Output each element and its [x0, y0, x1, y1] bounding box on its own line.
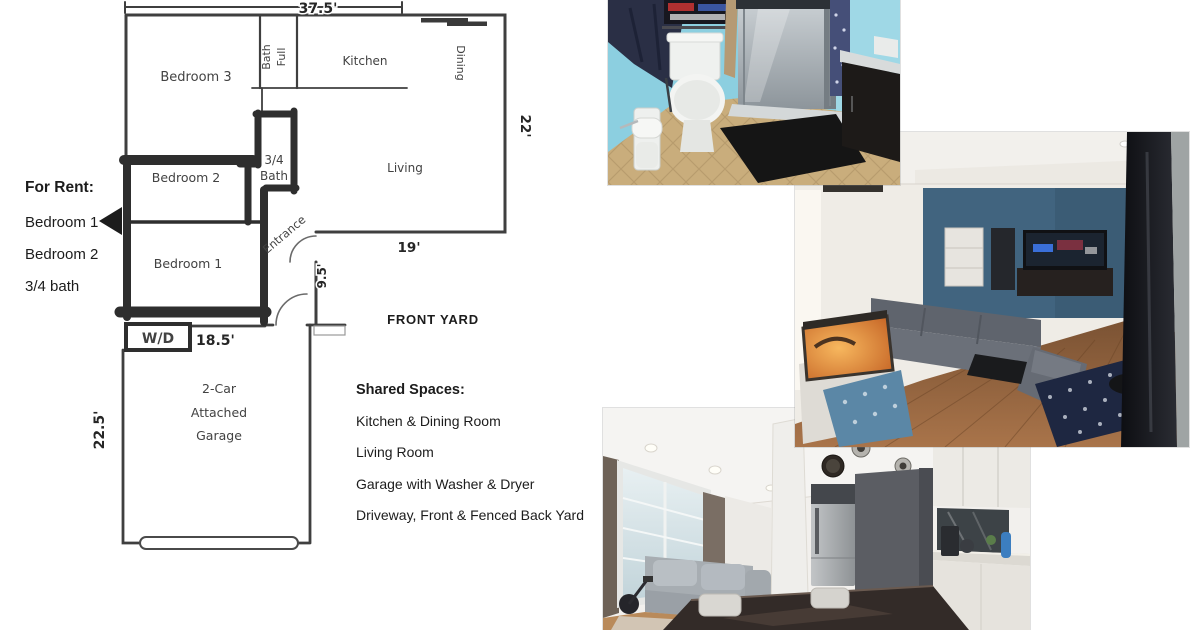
kettle	[960, 539, 974, 553]
blue-bottle	[1001, 532, 1011, 558]
dark-curtain	[1121, 132, 1177, 447]
left-curtain	[603, 456, 619, 618]
shared-spaces-item: Driveway, Front & Fenced Back Yard	[356, 507, 584, 523]
room-label-living: Living	[387, 161, 423, 175]
plant	[986, 535, 996, 545]
front-yard-label: FRONT YARD	[387, 312, 479, 327]
tv-and-stand	[1017, 230, 1113, 296]
shared-spaces-item: Garage with Washer & Dryer	[356, 476, 535, 492]
floor-plan: 37.5' 22' 19' 9.5' 18.5' 22.5' Bedroom 3…	[0, 0, 600, 630]
room-label-dining: Dining	[454, 45, 467, 81]
room-label-kitchen: Kitchen	[342, 54, 387, 68]
bedroom1-arrow-icon	[99, 207, 122, 235]
dim-top-width: 37.5'	[299, 1, 338, 17]
floor-plan-thick-walls	[120, 111, 296, 322]
for-rent-item: 3/4 bath	[25, 278, 79, 295]
room-label-full-bath-2: Bath	[260, 44, 273, 70]
dim-living-width: 19'	[398, 240, 421, 256]
window-markers	[421, 18, 487, 26]
room-label-bedroom3: Bedroom 3	[160, 70, 231, 85]
dim-entrance-depth: 9.5'	[315, 264, 329, 289]
for-rent-list: For Rent: Bedroom 1 Bedroom 2 3/4 bath	[25, 179, 98, 295]
dim-garage-depth: 22.5'	[92, 411, 108, 450]
room-label-garage-3: Garage	[196, 428, 242, 443]
room-label-34bath-2: Bath	[260, 169, 288, 183]
room-label-full-bath-1: Full	[275, 48, 288, 67]
for-rent-item: Bedroom 1	[25, 214, 98, 231]
bathroom-photo	[608, 0, 900, 185]
shared-spaces-heading: Shared Spaces:	[356, 382, 465, 398]
for-rent-item: Bedroom 2	[25, 246, 98, 263]
listing-graphic: 37.5' 22' 19' 9.5' 18.5' 22.5' Bedroom 3…	[0, 0, 1200, 630]
recessed-light	[645, 444, 657, 452]
shared-spaces-item: Kitchen & Dining Room	[356, 413, 501, 429]
dining-chair	[811, 588, 849, 608]
front-step	[314, 326, 345, 335]
shared-spaces-list: Shared Spaces: Kitchen & Dining Room Liv…	[356, 382, 584, 523]
room-label-washer-dryer: W/D	[142, 331, 174, 347]
for-rent-heading: For Rent:	[25, 179, 94, 196]
dim-garage-width: 18.5'	[196, 333, 235, 349]
room-label-34bath-1: 3/4	[264, 153, 283, 167]
room-label-garage-2: Attached	[191, 405, 247, 420]
room-label-bedroom2: Bedroom 2	[152, 170, 220, 185]
room-label-garage-1: 2-Car	[202, 381, 237, 396]
recessed-light	[709, 466, 721, 474]
ladder-shelf	[945, 228, 983, 286]
door-arcs	[276, 236, 316, 325]
dim-right-height: 22'	[517, 115, 533, 138]
coffee-maker	[941, 526, 959, 556]
room-label-bedroom1: Bedroom 1	[154, 256, 222, 271]
dining-chair	[699, 594, 741, 616]
top-dimension-line	[125, 2, 402, 13]
garage-door	[140, 537, 298, 549]
dark-accent-wall	[855, 468, 933, 600]
shared-spaces-item: Living Room	[356, 444, 434, 460]
mini-fridge	[991, 228, 1015, 290]
